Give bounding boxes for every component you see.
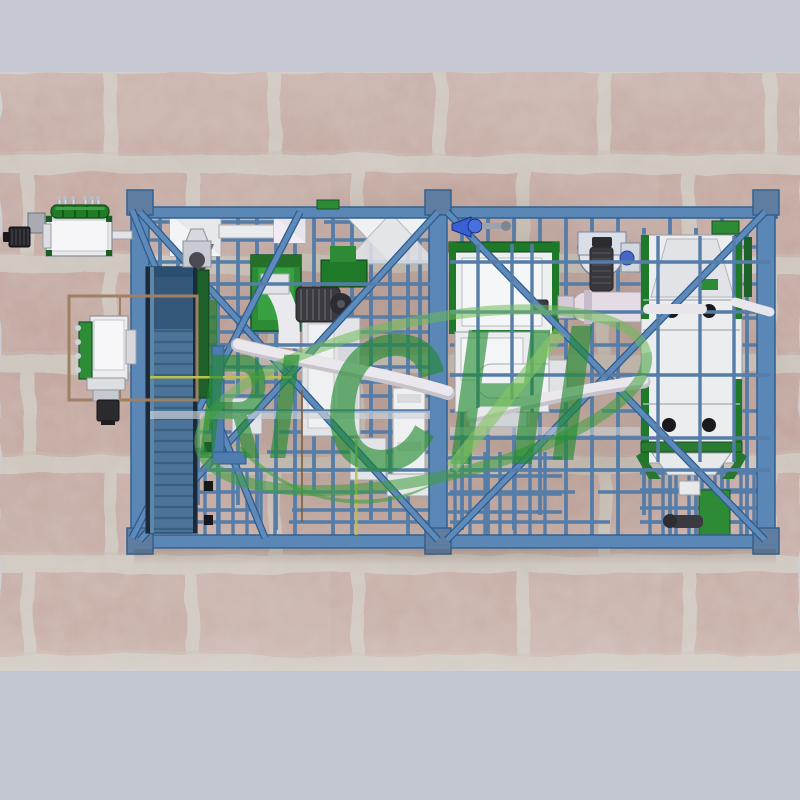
svg-text:R: R [198, 322, 266, 490]
svg-text:C: C [322, 294, 445, 512]
svg-text:I: I [550, 284, 593, 502]
svg-text:I: I [268, 322, 300, 490]
svg-text:H: H [448, 288, 551, 506]
